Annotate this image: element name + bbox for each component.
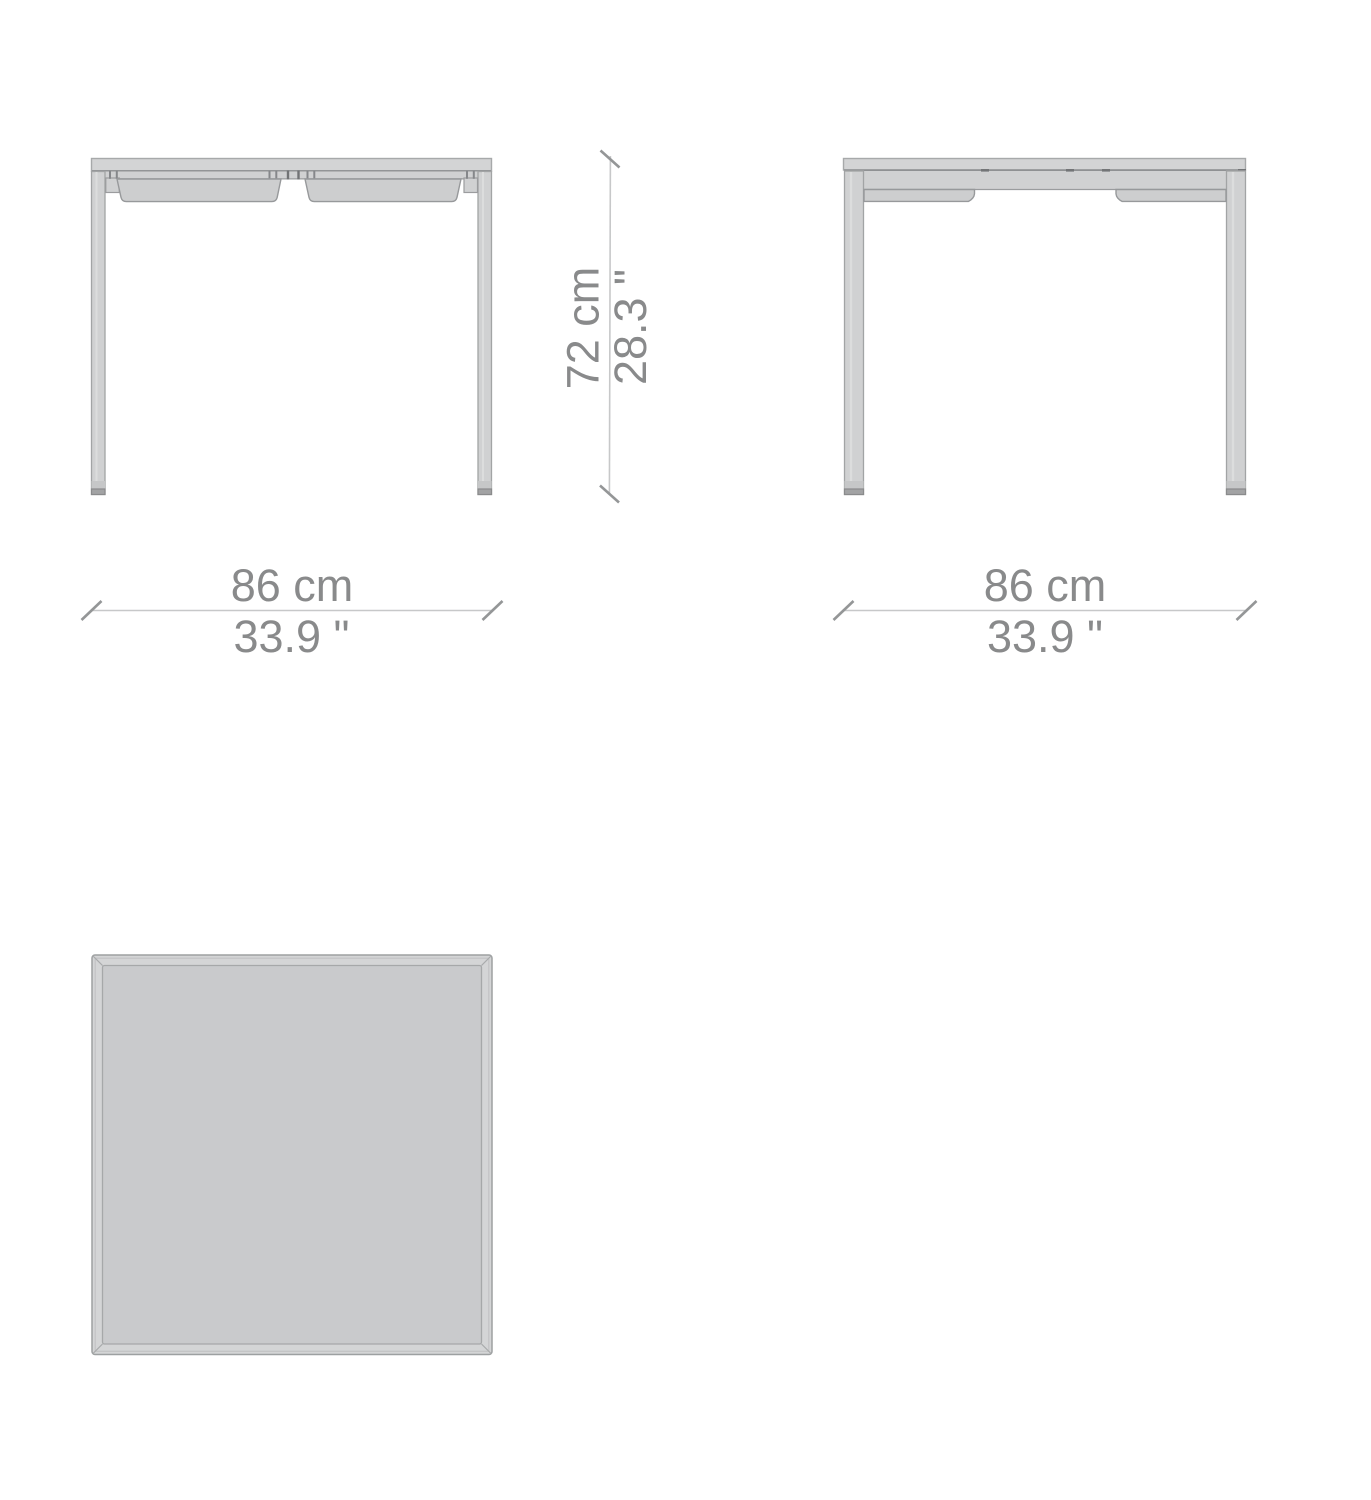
- svg-text:33.9 ": 33.9 ": [233, 611, 349, 662]
- svg-text:28.3 ": 28.3 ": [605, 269, 656, 385]
- svg-text:72 cm: 72 cm: [558, 267, 609, 390]
- svg-text:86 cm: 86 cm: [231, 560, 354, 611]
- svg-text:86 cm: 86 cm: [984, 560, 1107, 611]
- svg-text:33.9 ": 33.9 ": [987, 611, 1103, 662]
